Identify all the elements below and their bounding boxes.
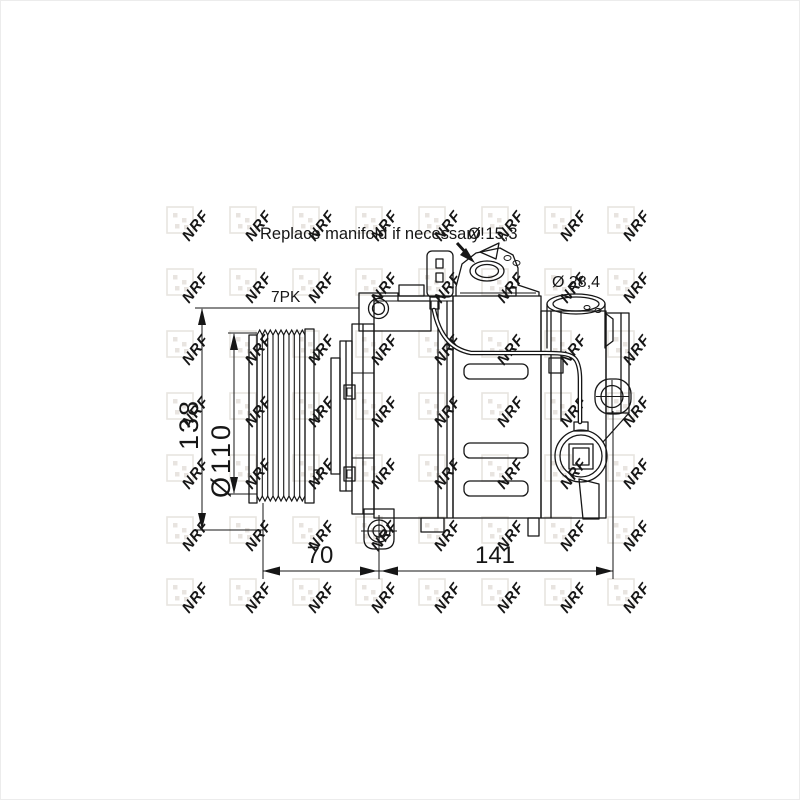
svg-text:NRF: NRF xyxy=(557,331,591,368)
svg-text:NRF: NRF xyxy=(494,455,528,492)
svg-text:NRF: NRF xyxy=(494,331,528,368)
svg-text:NRF: NRF xyxy=(431,579,465,616)
svg-text:NRF: NRF xyxy=(620,207,654,244)
svg-text:NRF: NRF xyxy=(242,517,276,554)
svg-text:NRF: NRF xyxy=(179,517,213,554)
svg-text:NRF: NRF xyxy=(242,455,276,492)
small-port-diameter-label: Ø 15,3 xyxy=(468,225,518,243)
svg-text:NRF: NRF xyxy=(305,579,339,616)
svg-text:NRF: NRF xyxy=(368,331,402,368)
svg-text:NRF: NRF xyxy=(179,331,213,368)
note-text: Replace manifold if necessary! xyxy=(260,225,485,243)
overall-height-label: 138 xyxy=(174,399,204,450)
svg-text:NRF: NRF xyxy=(368,393,402,430)
svg-text:NRF: NRF xyxy=(620,579,654,616)
svg-text:NRF: NRF xyxy=(179,579,213,616)
svg-text:NRF: NRF xyxy=(305,331,339,368)
svg-text:NRF: NRF xyxy=(557,579,591,616)
svg-text:NRF: NRF xyxy=(179,207,213,244)
svg-text:NRF: NRF xyxy=(620,455,654,492)
svg-text:NRF: NRF xyxy=(368,455,402,492)
svg-text:NRF: NRF xyxy=(431,455,465,492)
belt-type-annotation: 7PK xyxy=(195,289,359,308)
pulley-diameter-label: Ø110 xyxy=(206,422,236,498)
svg-text:NRF: NRF xyxy=(494,579,528,616)
svg-text:NRF: NRF xyxy=(431,393,465,430)
svg-text:NRF: NRF xyxy=(557,517,591,554)
compressor-body-rear xyxy=(453,288,541,536)
svg-text:NRF: NRF xyxy=(305,269,339,306)
svg-text:NRF: NRF xyxy=(242,393,276,430)
front-length-label: 70 xyxy=(307,542,334,569)
large-port-diameter-label: Ø 28,4 xyxy=(552,274,600,291)
svg-text:NRF: NRF xyxy=(620,517,654,554)
svg-text:NRF: NRF xyxy=(242,331,276,368)
svg-text:NRF: NRF xyxy=(557,207,591,244)
svg-text:NRF: NRF xyxy=(620,269,654,306)
svg-text:NRF: NRF xyxy=(620,331,654,368)
diagram-page: NRFNRFNRFNRFNRFNRFNRFNRFNRFNRFNRFNRFNRFN… xyxy=(0,0,800,800)
svg-text:NRF: NRF xyxy=(305,393,339,430)
technical-drawing: NRFNRFNRFNRFNRFNRFNRFNRFNRFNRFNRFNRFNRFN… xyxy=(1,1,800,800)
svg-text:NRF: NRF xyxy=(431,517,465,554)
rear-length-label: 141 xyxy=(475,542,515,569)
svg-text:NRF: NRF xyxy=(494,393,528,430)
svg-text:NRF: NRF xyxy=(368,579,402,616)
belt-type-label: 7PK xyxy=(271,289,301,306)
svg-text:NRF: NRF xyxy=(179,269,213,306)
note-annotation: Replace manifold if necessary! xyxy=(260,225,485,263)
svg-text:NRF: NRF xyxy=(242,579,276,616)
